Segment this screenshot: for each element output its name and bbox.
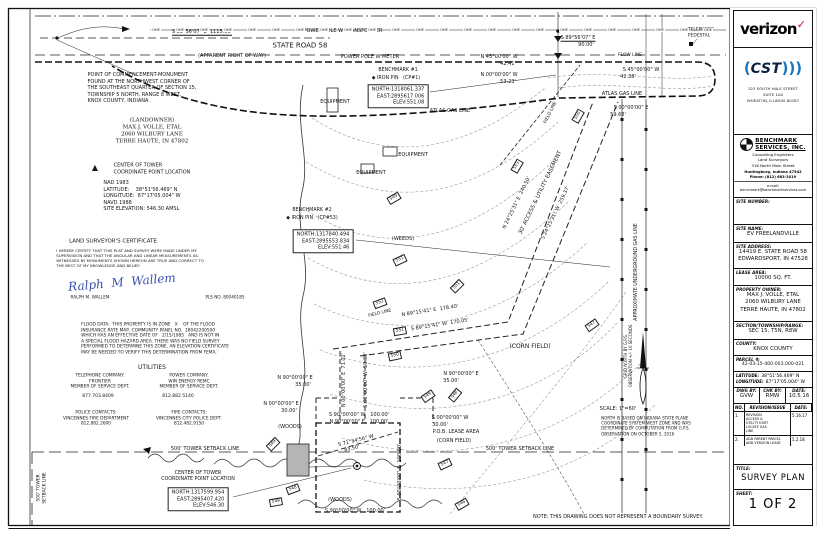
cst-arc-left: ( bbox=[744, 59, 751, 77]
longitude-value: 87°17'05.004" W bbox=[766, 380, 805, 385]
date-value: 10.5.16 bbox=[786, 393, 812, 400]
site-plan-drawing bbox=[0, 0, 824, 537]
sheet-number: 1 OF 2 bbox=[734, 497, 812, 512]
lease-area-field: LEASE AREA: 10000 SQ. FT. bbox=[733, 268, 813, 286]
sheet-border bbox=[9, 9, 816, 526]
leader-line bbox=[57, 40, 138, 76]
latitude-value: 38°51'56.469" N bbox=[761, 374, 799, 379]
access-easement-edge bbox=[360, 102, 618, 356]
equipment-outline bbox=[361, 164, 374, 173]
leader-line bbox=[693, 39, 697, 44]
woods-edge bbox=[148, 454, 204, 462]
title-block: verizon✓ (CST))) 323 SOUTH HALE STREET S… bbox=[730, 8, 816, 529]
revision-row-no: 2. bbox=[734, 436, 745, 446]
equipment-shelter bbox=[287, 444, 309, 476]
north-arrow bbox=[637, 332, 649, 404]
cst-address: 323 SOUTH HALE STREET SUITE 100 WHEATON,… bbox=[734, 86, 812, 104]
woods-edge bbox=[214, 459, 406, 467]
drawing-title: SURVEY PLAN bbox=[734, 473, 812, 483]
monument-point bbox=[55, 36, 58, 39]
telephone-pedestal-symbol bbox=[689, 42, 693, 46]
verizon-logo: verizon✓ bbox=[734, 11, 812, 47]
sheet-label: SHEET: bbox=[734, 490, 812, 496]
benchmark-compass-icon bbox=[740, 138, 753, 151]
parcel-field: PARCEL #: 42-03-15-400-003.000-021 bbox=[733, 355, 813, 372]
revision-row-desc: ADD PARENT PARCEL AND VERIZON LEASE bbox=[745, 436, 791, 446]
access-easement-edge bbox=[333, 102, 593, 349]
revision-row-desc: REVISION ACCESS & UTILITY ESMT LOCATE GA… bbox=[745, 412, 791, 436]
leader-line bbox=[60, 27, 125, 37]
benchmark-email: e-mail: benchmark@benchmarkservices.com bbox=[734, 181, 812, 192]
field-boundary bbox=[450, 292, 626, 514]
site-name-field: SITE NAME: EV FREELANDVILLE bbox=[733, 224, 813, 243]
leader-line bbox=[430, 75, 556, 92]
survey-plan-sheet: S 89°56'07" E 1115.66'STATE ROAD 58(APPA… bbox=[0, 0, 824, 537]
woods-edge bbox=[298, 500, 442, 508]
site-number-field: SITE NUMBER: bbox=[733, 197, 813, 225]
cst-logo: (CST))) 323 SOUTH HALE STREET SUITE 100 … bbox=[734, 48, 812, 104]
contour-lines bbox=[303, 75, 712, 489]
site-name-value: EV FREELANDVILLE bbox=[734, 231, 812, 238]
field-line bbox=[500, 65, 580, 165]
cst-arc-right: ))) bbox=[782, 59, 803, 77]
equipment-outline bbox=[383, 147, 397, 156]
cst-logo-box: (CST))) 323 SOUTH HALE STREET SUITE 100 … bbox=[733, 47, 813, 135]
leader-arrow bbox=[122, 26, 130, 32]
easement-connector bbox=[316, 351, 433, 423]
property-owner-field: PROPERTY OWNER: MAX J. VOLLE, ETAL 2060 … bbox=[733, 285, 813, 322]
site-address-field: SITE ADDRESS: 14419 E. STATE ROAD 58 EDW… bbox=[733, 242, 813, 269]
revision-issue-header: REVISION/ISSUE bbox=[745, 404, 791, 412]
dwg-by-value: GVW bbox=[734, 393, 759, 400]
lat-lon-field: LATITUDE: 38°51'56.469" N LONGITUDE: 87°… bbox=[733, 371, 813, 388]
cst-wordmark: CST bbox=[751, 61, 782, 77]
benchmark-name: BENCHMARK SERVICES, INC. bbox=[755, 138, 805, 150]
parcel-value: 42-03-15-400-003.000-021 bbox=[734, 362, 812, 368]
verizon-wordmark: verizon bbox=[740, 20, 797, 38]
benchmark-box: BENCHMARK SERVICES, INC. Consulting Engi… bbox=[733, 134, 813, 198]
lease-area-value: 10000 SQ. FT. bbox=[734, 275, 812, 282]
pole-arrow bbox=[554, 36, 562, 42]
county-value: KNOX COUNTY bbox=[734, 346, 812, 353]
pole-arrow bbox=[554, 53, 562, 59]
verizon-logo-box: verizon✓ bbox=[733, 10, 813, 48]
section-township-range-value: SEC 15, T5N, R8W bbox=[734, 328, 812, 335]
setback-arrow bbox=[143, 447, 151, 454]
title-field: TITLE: SURVEY PLAN bbox=[733, 464, 813, 490]
latitude-label: LATITUDE: bbox=[736, 373, 759, 378]
field-boundary bbox=[478, 340, 584, 514]
revision-no-header: NO. bbox=[734, 404, 745, 412]
equipment-outline bbox=[327, 88, 338, 112]
benchmark-subtitle: Consulting Engineers Land Surveyors 316 … bbox=[734, 152, 812, 168]
site-address-value: 14419 E. STATE ROAD 58 EDWARDSPORT, IN 4… bbox=[734, 249, 812, 264]
revision-date-header: DATE: bbox=[791, 404, 812, 412]
revision-row-date: 5.2.18 bbox=[791, 436, 812, 446]
verizon-check-icon: ✓ bbox=[797, 18, 806, 31]
property-owner-value: MAX J. VOLLE, ETAL 2060 WILBURY LANE TER… bbox=[734, 292, 812, 314]
dwg-chk-date-field: DWG BY: GVW CHK BY: RMW DATE: 10.5.16 bbox=[733, 387, 813, 404]
county-field: COUNTY: KNOX COUNTY bbox=[733, 339, 813, 356]
tree-line bbox=[297, 85, 306, 448]
sheet-field: SHEET: 1 OF 2 bbox=[733, 489, 813, 526]
site-number-label: SITE NUMBER: bbox=[734, 198, 812, 204]
tower-center-dot bbox=[356, 465, 359, 468]
chk-by-value: RMW bbox=[760, 393, 785, 400]
revision-row-no: 1. bbox=[734, 412, 745, 436]
revision-table: NO. REVISION/ISSUE DATE: 1. REVISION ACC… bbox=[733, 403, 813, 465]
benchmark-contact: Huntingburg, Indiana 47542 Phone: (812) … bbox=[734, 170, 812, 180]
power-pole-symbol bbox=[556, 29, 560, 33]
atlas-gas-line bbox=[35, 62, 715, 116]
title-label: TITLE: bbox=[734, 465, 812, 471]
longitude-label: LONGITUDE: bbox=[736, 379, 764, 384]
revision-row-date: 5.16.17 bbox=[791, 412, 812, 436]
section-township-range-field: SECTION/TOWNSHIP/RANGE: SEC 15, T5N, R8W bbox=[733, 321, 813, 340]
